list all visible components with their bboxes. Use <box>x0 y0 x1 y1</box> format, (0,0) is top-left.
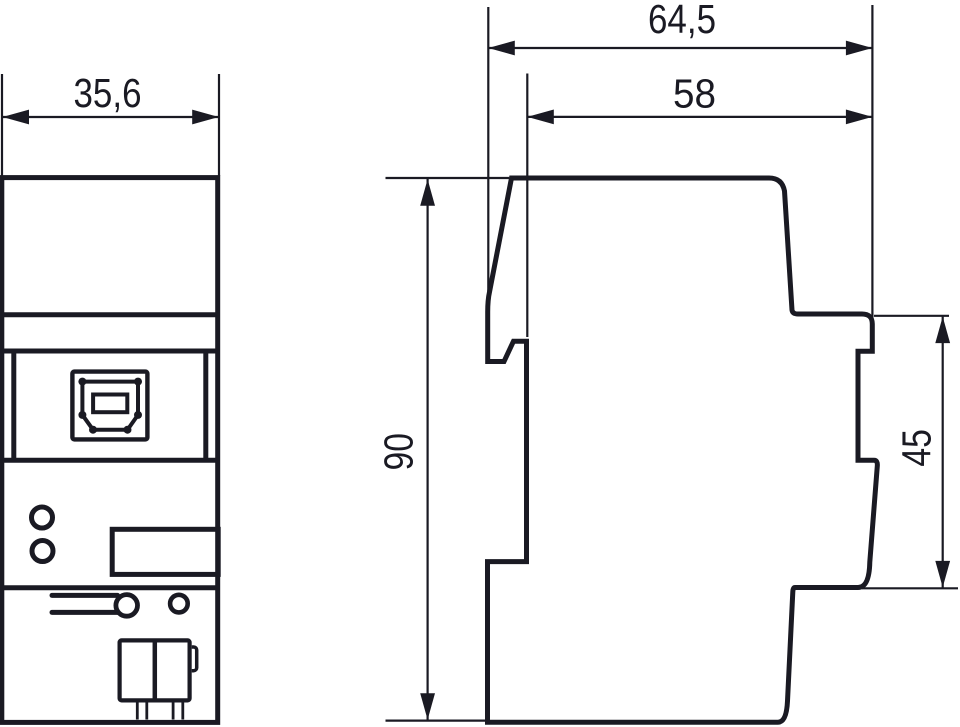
svg-text:64,5: 64,5 <box>648 0 716 42</box>
svg-text:45: 45 <box>894 429 940 467</box>
svg-text:90: 90 <box>376 433 422 471</box>
svg-text:58: 58 <box>673 71 716 117</box>
svg-text:35,6: 35,6 <box>74 70 142 116</box>
